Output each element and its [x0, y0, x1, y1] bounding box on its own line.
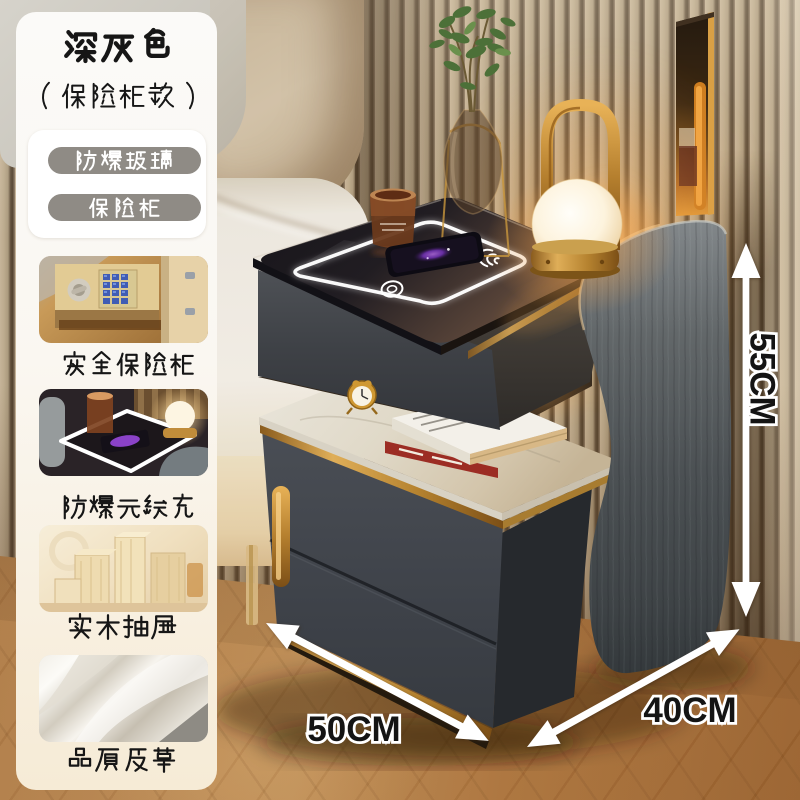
- svg-text:40CM: 40CM: [643, 691, 736, 730]
- svg-text:50CM: 50CM: [307, 710, 400, 749]
- svg-text:55CM: 55CM: [743, 332, 782, 425]
